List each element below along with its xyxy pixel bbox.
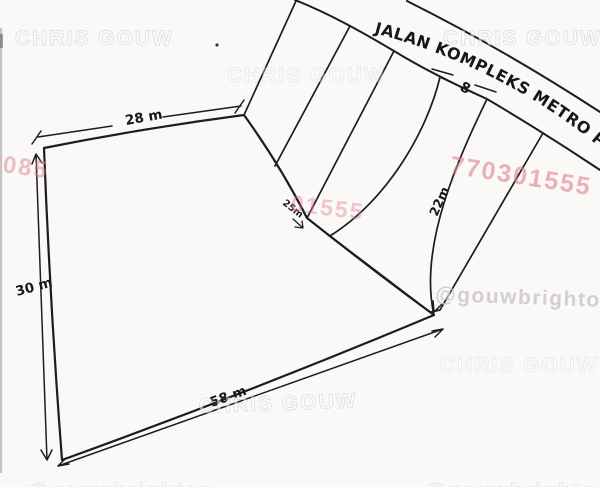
sketch-canvas: 28 m 30 m 58 m 22m 8 25m JALAN KOMPLEKS … — [0, 0, 600, 487]
watermark-brand-right-lower: CHRIS GOUW — [440, 354, 599, 377]
watermark-brand-top-left: CHRIS GOUW — [15, 27, 174, 50]
land-plot-sketch: 28 m 30 m 58 m 22m 8 25m JALAN KOMPLEKS … — [0, 0, 600, 487]
watermark-brand-top-right: CHRIS GOUW — [443, 27, 600, 50]
watermark-handle-bottom-left-clipped: @gouwbrighton — [28, 480, 214, 487]
watermark-handle-bottom-right-clipped: @gouwbrighton — [425, 480, 600, 487]
scan-edge-left — [0, 28, 2, 473]
scan-edge-mark — [0, 34, 3, 48]
pen-dot — [215, 43, 218, 46]
watermark-brand-top-middle: CHRIS GOUW — [227, 64, 386, 87]
